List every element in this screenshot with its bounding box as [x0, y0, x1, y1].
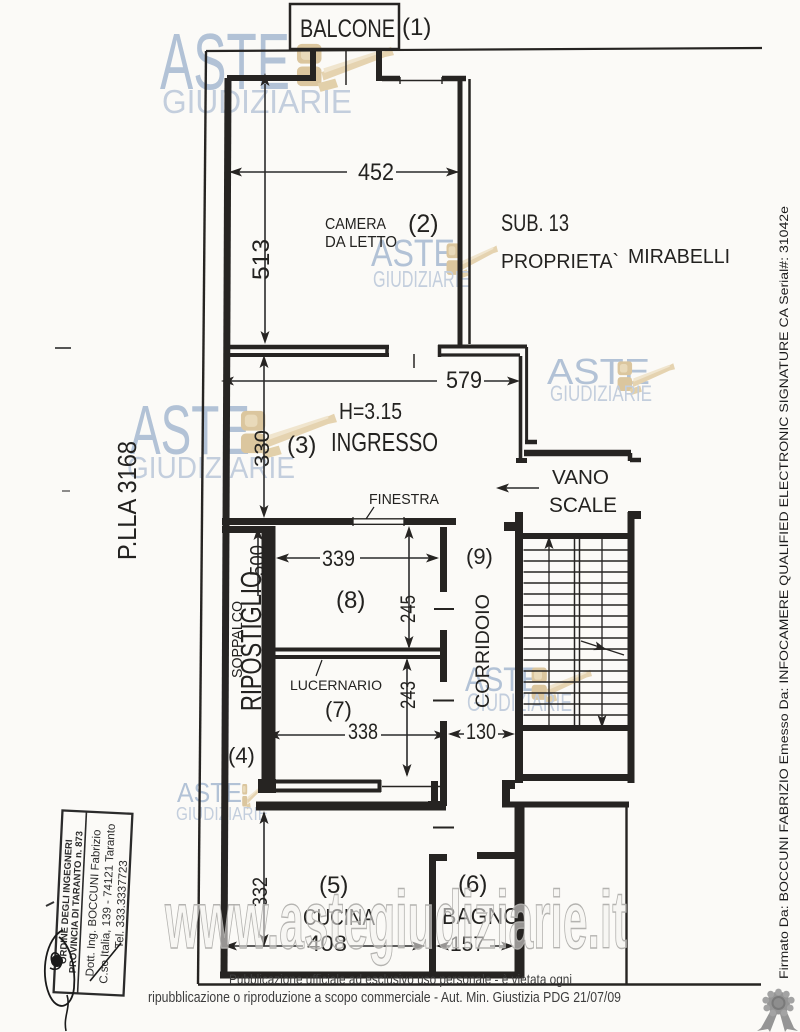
svg-text:SUB. 13: SUB. 13 [501, 210, 569, 237]
svg-text:VANO: VANO [552, 467, 609, 489]
svg-text:H=3.15: H=3.15 [339, 398, 402, 424]
svg-text:www.astegiudiziarie.it: www.astegiudiziarie.it [164, 875, 627, 966]
svg-text:SOPPALCO: SOPPALCO [229, 601, 246, 678]
svg-text:338: 338 [348, 719, 378, 744]
svg-text:452: 452 [358, 159, 394, 186]
svg-text:P.LLA 3168: P.LLA 3168 [112, 441, 142, 560]
svg-text:Pubblicazione ufficiale ad esc: Pubblicazione ufficiale ad esclusivo uso… [229, 971, 572, 987]
svg-text:LUCERNARIO: LUCERNARIO [290, 677, 382, 693]
svg-text:MIRABELLI: MIRABELLI [628, 246, 730, 268]
svg-text:SCALE: SCALE [549, 494, 617, 517]
svg-text:579: 579 [446, 367, 482, 394]
svg-text:(2): (2) [408, 210, 439, 238]
svg-text:DA LETTO: DA LETTO [325, 234, 397, 251]
svg-text:ripubblicazione o riproduzione: ripubblicazione o riproduzione a scopo c… [148, 990, 621, 1006]
svg-text:Tel. 333.3337723: Tel. 333.3337723 [114, 860, 130, 949]
svg-text:(3): (3) [287, 432, 316, 459]
svg-text:(1): (1) [402, 14, 431, 41]
svg-text:(4): (4) [228, 743, 255, 768]
svg-text:PROPRIETA`: PROPRIETA` [501, 251, 619, 273]
svg-text:130: 130 [466, 719, 496, 744]
svg-text:(9): (9) [466, 544, 493, 569]
svg-text:GIUDIZIARIE: GIUDIZIARIE [550, 381, 652, 406]
svg-text:INGRESSO: INGRESSO [331, 427, 438, 457]
svg-text:245: 245 [397, 595, 420, 623]
svg-text:FINESTRA: FINESTRA [369, 492, 439, 508]
svg-text:513: 513 [248, 239, 275, 280]
svg-text:CAMERA: CAMERA [325, 216, 386, 233]
svg-text:GIUDIZIARIE: GIUDIZIARIE [373, 266, 470, 292]
svg-text:Firmato Da: BOCCUNI FABRIZIO E: Firmato Da: BOCCUNI FABRIZIO Emesso Da: … [777, 206, 791, 979]
svg-text:243: 243 [397, 681, 420, 709]
svg-text:(8): (8) [336, 587, 365, 614]
svg-text:GIUDIZIARIE: GIUDIZIARIE [162, 83, 352, 120]
svg-text:330: 330 [251, 430, 274, 467]
svg-text:CORRIDOIO: CORRIDOIO [472, 594, 494, 708]
svg-text:339: 339 [322, 546, 355, 571]
svg-text:BALCONE: BALCONE [300, 15, 395, 43]
